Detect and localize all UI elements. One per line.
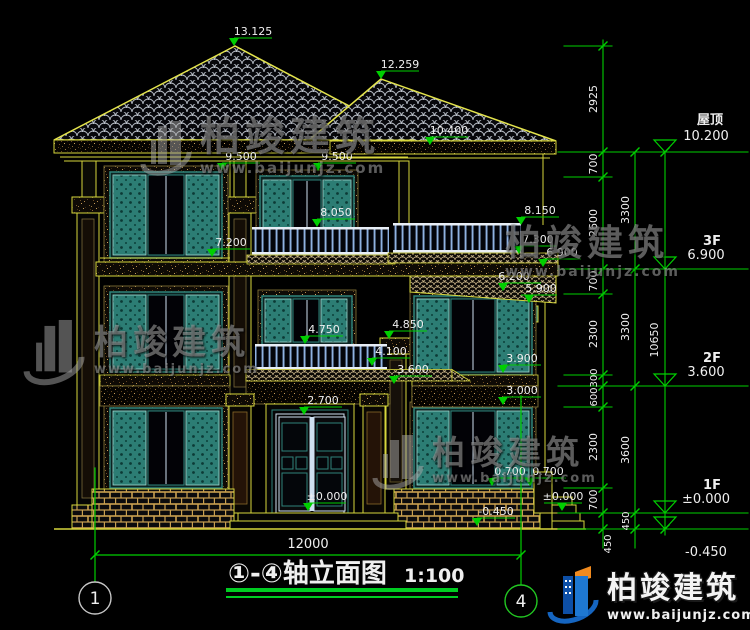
window-2f-right — [410, 292, 536, 380]
svg-text:450: 450 — [621, 511, 632, 530]
center-left-pilaster — [224, 161, 256, 394]
svg-text:0.700: 0.700 — [532, 465, 564, 478]
svg-text:6.900: 6.900 — [546, 246, 578, 259]
svg-text:0.700: 0.700 — [494, 465, 526, 478]
svg-text:9.500: 9.500 — [225, 150, 257, 163]
svg-text:5.900: 5.900 — [525, 282, 557, 295]
drawing-title: ①-④轴立面图 1:100 — [226, 558, 464, 598]
svg-text:3300: 3300 — [619, 196, 632, 224]
level-1f-label: 1F — [703, 478, 721, 493]
svg-text:450: 450 — [603, 534, 614, 553]
window-1f-right — [410, 402, 536, 494]
floor-level-labels: 屋顶 10.200 3F 6.900 2F 3.600 1F ±0.000 -0… — [682, 113, 730, 560]
svg-text:600: 600 — [589, 387, 600, 406]
site-logo-brand: 柏竣建筑 — [607, 563, 750, 607]
axis-bubble-4: 4 — [505, 585, 537, 617]
svg-text:3300: 3300 — [619, 313, 632, 341]
axis-bubble-4-label: 4 — [516, 592, 527, 612]
level-2f-value: 3.600 — [687, 365, 724, 380]
site-logo: 柏竣建筑 www.baijunjz.com — [545, 562, 750, 624]
svg-text:700: 700 — [587, 154, 600, 175]
title-underline-thick — [226, 588, 458, 592]
svg-text:3600: 3600 — [619, 436, 632, 464]
level-2f-label: 2F — [703, 351, 721, 366]
svg-text:4.850: 4.850 — [392, 318, 424, 331]
secondary-eave-fascia — [330, 141, 556, 154]
elevation-marker: 12.259 — [376, 58, 419, 79]
svg-text:3.600: 3.600 — [397, 363, 429, 376]
svg-text:12.259: 12.259 — [381, 58, 420, 71]
level-roof-value: 10.200 — [683, 129, 729, 144]
level-ground-value: -0.450 — [685, 545, 727, 560]
left-pilaster — [72, 161, 104, 529]
axis-bubble-1-label: 1 — [90, 589, 101, 609]
site-logo-url: www.baijunjz.com — [607, 608, 750, 623]
svg-text:4.750: 4.750 — [308, 323, 340, 336]
svg-text:10.400: 10.400 — [430, 124, 469, 137]
brick-base-right — [394, 489, 540, 529]
level-1f-value: ±0.000 — [682, 492, 730, 507]
svg-text:2925: 2925 — [587, 85, 600, 113]
svg-text:±0.000: ±0.000 — [543, 490, 584, 503]
window-2f-left — [104, 286, 228, 378]
level-3f-label: 3F — [703, 234, 721, 249]
site-logo-icon — [545, 562, 601, 624]
svg-text:±0.000: ±0.000 — [307, 490, 348, 503]
svg-text:700: 700 — [587, 490, 600, 511]
window-1f-left — [104, 402, 228, 494]
svg-text:13.125: 13.125 — [234, 25, 273, 38]
svg-text:2300: 2300 — [587, 320, 600, 348]
porch-pilaster-right — [360, 394, 388, 513]
svg-text:2300: 2300 — [587, 433, 600, 461]
svg-text:4.100: 4.100 — [375, 345, 407, 358]
svg-text:9.500: 9.500 — [321, 150, 353, 163]
level-3f-value: 6.900 — [687, 248, 724, 263]
title-underline-thin — [226, 596, 458, 598]
dimension-ticks — [599, 42, 669, 533]
svg-text:7.200: 7.200 — [215, 236, 247, 249]
title-scale: 1:100 — [404, 565, 464, 587]
level-roof-label: 屋顶 — [697, 113, 723, 128]
floor-band-2f-left — [100, 386, 230, 406]
svg-text:8.050: 8.050 — [320, 206, 352, 219]
dimension-chain-labels: 2925 700 2600 700 2300 300 600 2300 700 … — [587, 85, 661, 554]
porch-step-2 — [230, 521, 406, 529]
axis-bubble-1: 1 — [79, 582, 111, 614]
svg-text:700: 700 — [587, 271, 600, 292]
balcony-railing-3f — [247, 227, 395, 264]
svg-text:2600: 2600 — [587, 209, 600, 237]
svg-text:3.000: 3.000 — [506, 384, 538, 397]
svg-text:8.150: 8.150 — [524, 204, 556, 217]
svg-text:3.900: 3.900 — [506, 352, 538, 365]
svg-text:7.300: 7.300 — [522, 233, 554, 246]
svg-text:300: 300 — [589, 368, 600, 387]
window-3f-left — [104, 166, 228, 262]
porch-step-1 — [238, 513, 398, 521]
cad-elevation-screenshot: 12000 1 4 13.125 12.259 10.400 9.500 9.5… — [0, 0, 750, 630]
house-facade — [54, 46, 586, 529]
elevation-marker: 13.125 — [229, 25, 272, 46]
overall-width-value: 12000 — [287, 537, 328, 552]
elevation-marker: 8.150 — [516, 204, 559, 225]
title-text: ①-④轴立面图 — [228, 558, 387, 589]
elevation-drawing: 12000 1 4 13.125 12.259 10.400 9.500 9.5… — [0, 0, 750, 630]
brick-base-left — [92, 489, 234, 529]
svg-text:-0.450: -0.450 — [478, 505, 513, 518]
svg-text:10650: 10650 — [648, 323, 661, 358]
svg-text:2.700: 2.700 — [307, 394, 339, 407]
